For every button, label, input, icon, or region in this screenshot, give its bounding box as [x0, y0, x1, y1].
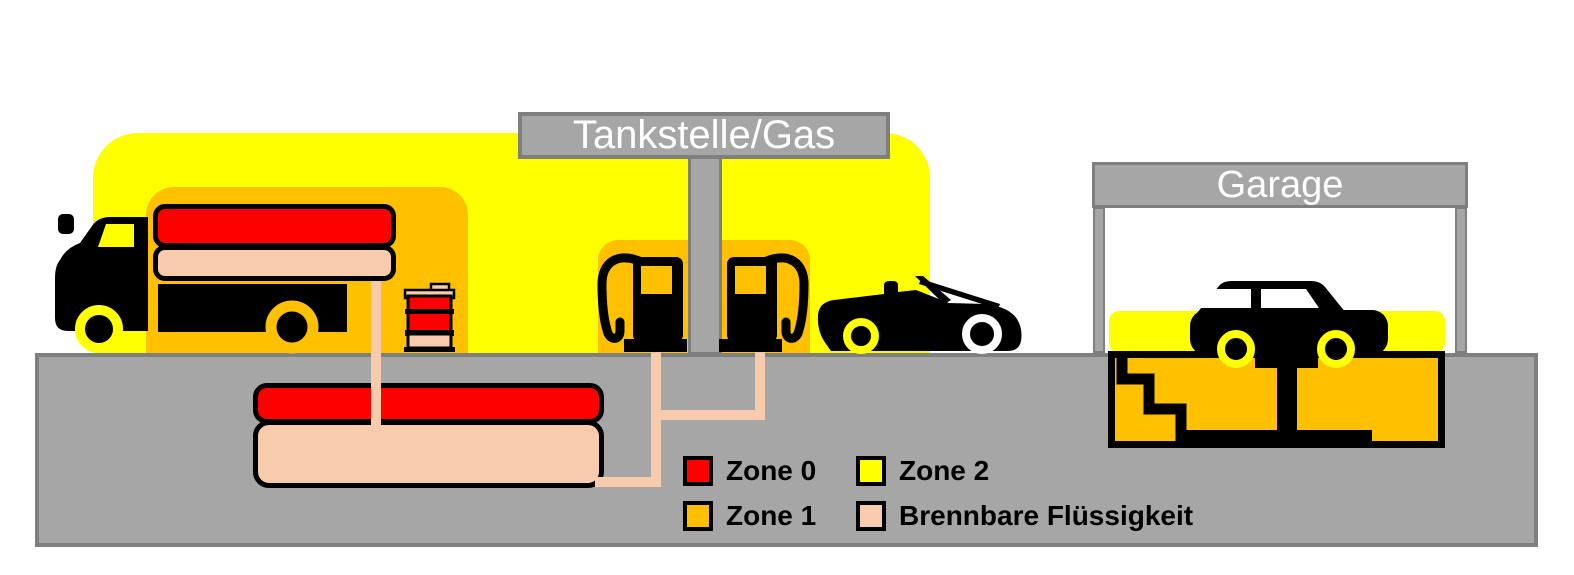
- garage-pillar-right: [1455, 207, 1467, 353]
- right-pump-pipe: [755, 350, 765, 420]
- flammable-liquid-label: Brennbare Flüssigkeit: [899, 501, 1193, 531]
- garage-pillar-left: [1093, 207, 1105, 353]
- hazard-zones-diagram: Garage Tankstelle/Gas Zone 0 Zone 2 Zone…: [0, 0, 1574, 575]
- legend-item-zone2: Zone 2: [856, 456, 989, 486]
- legend-item-zone1: Zone 1: [683, 501, 816, 531]
- station-sign-label: Tankstelle/Gas: [573, 113, 835, 158]
- tanker-chassis: [158, 284, 347, 332]
- zone1-label: Zone 1: [726, 501, 816, 531]
- underground-tank-flammable-liquid: [253, 420, 604, 488]
- zone2-swatch: [856, 456, 886, 486]
- legend-item-zone0: Zone 0: [683, 456, 816, 486]
- tanker-tank-zone0: [153, 204, 396, 248]
- garage-pit-zone1: [1108, 351, 1445, 448]
- pump-connection-pipe: [655, 410, 765, 420]
- zone2-label: Zone 2: [899, 456, 989, 486]
- zone1-swatch: [683, 501, 713, 531]
- garage-sign: Garage: [1092, 162, 1468, 208]
- convertible-front-wheel: [966, 318, 998, 350]
- garage-car-window-left: [1199, 289, 1251, 308]
- flammable-liquid-swatch: [856, 501, 886, 531]
- garage-car-window-right: [1261, 289, 1319, 308]
- zone0-swatch: [683, 456, 713, 486]
- zone0-label: Zone 0: [726, 456, 816, 486]
- underground-tank-zone0: [253, 383, 604, 424]
- legend-item-flammable-liquid: Brennbare Flüssigkeit: [856, 501, 1193, 531]
- station-sign-post: [688, 150, 722, 355]
- tanker-tank-flammable-liquid: [153, 245, 396, 281]
- station-sign: Tankstelle/Gas: [518, 112, 890, 159]
- garage-sign-label: Garage: [1217, 164, 1344, 207]
- garage-zone2-area: [1109, 311, 1445, 353]
- tanker-fill-pipe: [371, 278, 381, 425]
